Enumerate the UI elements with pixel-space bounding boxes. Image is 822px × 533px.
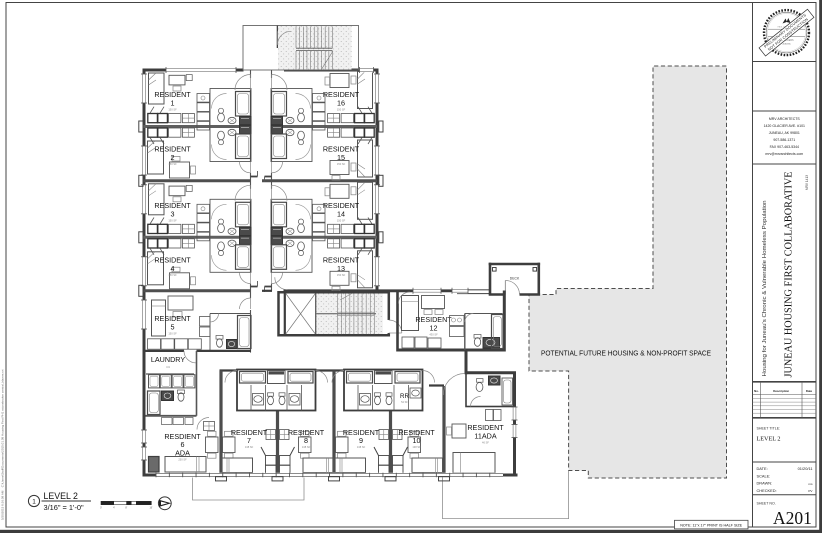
svg-text:RR: RR: [400, 393, 409, 400]
svg-text:16: 16: [337, 99, 345, 108]
svg-text:150 SF: 150 SF: [337, 162, 346, 166]
svg-text:Housing for Juneau's Chronic &: Housing for Juneau's Chronic & Vulnerabl…: [762, 201, 768, 377]
svg-text:14: 14: [337, 209, 345, 218]
svg-text:3/16" = 1'-0": 3/16" = 1'-0": [44, 503, 85, 512]
svg-text:54 SF: 54 SF: [401, 401, 408, 404]
svg-text:8: 8: [304, 436, 308, 445]
svg-text:150 SF: 150 SF: [337, 273, 346, 277]
svg-text:4: 4: [171, 264, 175, 273]
svg-text:10: 10: [413, 436, 421, 445]
svg-text:1: 1: [32, 499, 36, 506]
svg-text:SHEET TITLE:: SHEET TITLE:: [757, 427, 781, 431]
svg-text:SHEET NO.: SHEET NO.: [757, 502, 776, 506]
svg-text:LEVEL 2: LEVEL 2: [757, 436, 781, 443]
svg-text:150 SF: 150 SF: [337, 218, 346, 222]
svg-text:NOTE: 11"x 17" PRINT IS HALF S: NOTE: 11"x 17" PRINT IS HALF SIZE: [680, 524, 742, 528]
svg-text:13: 13: [337, 264, 345, 273]
svg-text:DATE:: DATE:: [757, 466, 768, 471]
svg-text:138 SF: 138 SF: [245, 445, 254, 449]
svg-text:LEVEL 2: LEVEL 2: [44, 491, 79, 501]
svg-text:46 SF: 46 SF: [482, 441, 489, 445]
svg-text:138 SF: 138 SF: [412, 445, 421, 449]
svg-text:430 SF: 430 SF: [429, 333, 438, 337]
svg-text:ALASKA: ALASKA: [782, 42, 791, 45]
svg-text:150 SF: 150 SF: [168, 218, 177, 222]
svg-text:150 SF: 150 SF: [168, 108, 177, 112]
svg-text:5: 5: [171, 323, 175, 332]
svg-text:MRV ARCHITECTS: MRV ARCHITECTS: [769, 117, 801, 121]
svg-text:12: 12: [430, 324, 438, 333]
svg-text:ADA: ADA: [175, 448, 190, 457]
svg-text:JUNEAU HOUSING FIRST COLLABORA: JUNEAU HOUSING FIRST COLLABORATIVE: [783, 171, 795, 377]
svg-text:A201: A201: [773, 508, 812, 528]
svg-text:3-9: 3-9: [166, 365, 170, 369]
svg-text:150 SF: 150 SF: [337, 108, 346, 112]
svg-text:01/20/11: 01/20/11: [798, 466, 813, 471]
svg-text:mrv@mrvarchitects.com: mrv@mrvarchitects.com: [765, 152, 803, 156]
svg-text:150 SF: 150 SF: [168, 162, 177, 166]
svg-text:907-586-1371: 907-586-1371: [773, 138, 795, 142]
svg-text:9: 9: [359, 436, 363, 445]
svg-text:FAX 907-463-5344: FAX 907-463-5344: [770, 145, 799, 149]
svg-text:16': 16': [149, 507, 153, 510]
svg-text:1420 GLACIER AVE. #101: 1420 GLACIER AVE. #101: [764, 124, 805, 128]
svg-text:DRAWN:: DRAWN:: [757, 481, 773, 486]
svg-text:SCALE:: SCALE:: [757, 473, 771, 478]
svg-text:11ADA: 11ADA: [474, 432, 496, 441]
svg-text:No.: No.: [754, 389, 759, 393]
svg-text:150 SF: 150 SF: [168, 273, 177, 277]
svg-text:138 SF: 138 SF: [302, 445, 311, 449]
svg-text:3: 3: [171, 209, 175, 218]
svg-text:MRV 1413: MRV 1413: [805, 175, 809, 190]
svg-text:Description: Description: [773, 389, 789, 393]
svg-text:15: 15: [337, 153, 345, 162]
svg-text:POTENTIAL FUTURE HOUSING & NON: POTENTIAL FUTURE HOUSING & NON-PROFIT SP…: [541, 349, 711, 358]
svg-text:1: 1: [171, 99, 175, 108]
svg-text:CHECKED:: CHECKED:: [757, 488, 777, 493]
svg-text:Date: Date: [806, 389, 813, 393]
svg-text:150 SF: 150 SF: [168, 332, 177, 336]
svg-text:JUNEAU, AK 99801: JUNEAU, AK 99801: [769, 131, 800, 135]
svg-text:DECK: DECK: [510, 277, 520, 281]
svg-text:7: 7: [247, 436, 251, 445]
svg-text:5/20/2015 8:36:09 AM C:\Use: 5/20/2015 8:36:09 AM C:\Users\Staff\Docu…: [1, 369, 5, 520]
svg-text:LAUNDRY: LAUNDRY: [151, 355, 185, 364]
svg-text:2: 2: [171, 153, 175, 162]
svg-text:ms: ms: [808, 482, 813, 486]
svg-text:138 SF: 138 SF: [357, 445, 366, 449]
svg-text:250 SF: 250 SF: [178, 457, 187, 461]
